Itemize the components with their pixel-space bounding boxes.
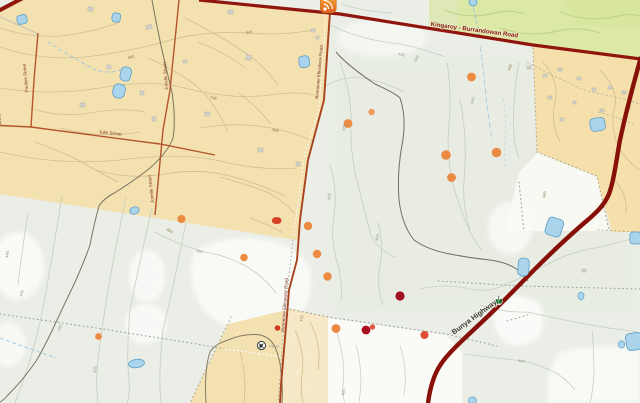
svg-text:455: 455: [92, 365, 98, 373]
svg-text:Trevor: Trevor: [269, 345, 281, 349]
